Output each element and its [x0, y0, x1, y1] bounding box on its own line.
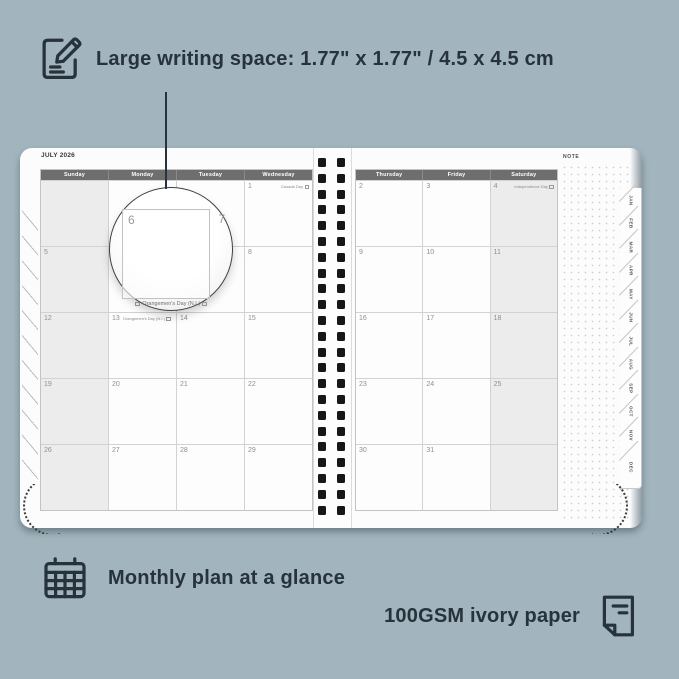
- spiral-hole: [337, 395, 345, 404]
- calendar-cell: 29: [245, 445, 312, 510]
- calendar-cell: 27: [109, 445, 177, 510]
- top-annotation: Large writing space: 1.77" x 1.77" / 4.5…: [38, 34, 554, 84]
- calendar-cell: 20: [109, 379, 177, 444]
- calendar-cell: 3: [423, 181, 490, 246]
- spiral-hole: [318, 174, 326, 183]
- calendar-cell: 10: [423, 247, 490, 312]
- date-number: 19: [44, 381, 52, 389]
- calendar-mini-icon: [135, 302, 140, 307]
- spiral-hole: [318, 379, 326, 388]
- date-number: 30: [359, 447, 367, 455]
- month-tab-sep: SEP: [620, 376, 642, 400]
- spiral-hole: [337, 269, 345, 278]
- spiral-hole: [318, 237, 326, 246]
- date-number: 12: [44, 315, 52, 323]
- date-number: 9: [359, 249, 363, 257]
- spiral-hole: [337, 427, 345, 436]
- planner-right-page: ThursdayFridaySaturday234Independence Da…: [352, 148, 642, 528]
- date-number: 2: [359, 183, 363, 191]
- date-number: 15: [248, 315, 256, 323]
- spiral-hole: [337, 237, 345, 246]
- spiral-hole: [337, 300, 345, 309]
- month-title: JULY 2026: [41, 152, 75, 159]
- calendar-grid-right: ThursdayFridaySaturday234Independence Da…: [355, 169, 558, 511]
- magnifier-circle: 6 7 Orangemen's Day (N.I.): [109, 187, 233, 311]
- spiral-hole: [318, 253, 326, 262]
- calendar-cell: 18: [491, 313, 557, 378]
- calendar-cell: 1Canada Day: [245, 181, 312, 246]
- date-number: 27: [112, 447, 120, 455]
- spiral-hole: [318, 427, 326, 436]
- magnified-date-number: 6: [128, 213, 135, 227]
- date-number: 3: [426, 183, 430, 191]
- calendar-cell: 21: [177, 379, 245, 444]
- date-number: 10: [426, 249, 434, 257]
- month-tab-jul: JUL: [620, 329, 642, 353]
- date-number: 5: [44, 249, 48, 257]
- date-number: 1: [248, 183, 252, 191]
- calendar-cell: 24: [423, 379, 490, 444]
- spiral-hole: [337, 379, 345, 388]
- spiral-hole: [337, 411, 345, 420]
- spiral-hole: [318, 284, 326, 293]
- calendar-cell: 8: [245, 247, 312, 312]
- spiral-hole: [318, 158, 326, 167]
- bottom-right-annotation-text: 100GSM ivory paper: [384, 605, 580, 628]
- flag-icon: [166, 317, 171, 321]
- date-number: 24: [426, 381, 434, 389]
- spiral-hole: [337, 205, 345, 214]
- calendar-cell: 14: [177, 313, 245, 378]
- calendar-cell: 30: [356, 445, 423, 510]
- calendar-cell: [491, 445, 557, 510]
- flag-icon: [202, 302, 207, 306]
- calendar-cell: 15: [245, 313, 312, 378]
- spiral-hole: [337, 221, 345, 230]
- spiral-hole: [337, 442, 345, 451]
- note-label: NOTE: [563, 154, 579, 160]
- spiral-hole: [337, 158, 345, 167]
- calendar-cell: 12: [41, 313, 109, 378]
- edit-note-icon: [38, 34, 84, 84]
- margin-hatch-decoration: [22, 206, 38, 484]
- holiday-label: Independence Day: [514, 183, 555, 191]
- calendar-cell: 17: [423, 313, 490, 378]
- date-number: 4: [494, 183, 498, 191]
- magnified-holiday-label: Orangemen's Day (N.I.): [110, 301, 232, 307]
- spiral-hole: [337, 348, 345, 357]
- spiral-hole: [318, 363, 326, 372]
- spiral-hole: [318, 190, 326, 199]
- calendar-cell: 22: [245, 379, 312, 444]
- month-tab-feb: FEB: [620, 212, 642, 236]
- spiral-hole: [318, 474, 326, 483]
- spiral-hole: [337, 490, 345, 499]
- magnified-adjacent-date: 7: [218, 212, 225, 226]
- spiral-hole: [318, 348, 326, 357]
- date-number: 16: [359, 315, 367, 323]
- calendar-cell: 11: [491, 247, 557, 312]
- spiral-hole-column: [318, 158, 326, 515]
- paper-sheet-icon: [596, 592, 640, 640]
- spiral-hole: [318, 458, 326, 467]
- callout-line: [165, 92, 167, 189]
- spiral-hole: [337, 474, 345, 483]
- spiral-hole-column: [337, 158, 345, 515]
- spiral-hole: [318, 269, 326, 278]
- spiral-hole: [318, 205, 326, 214]
- month-tab-nov: NOV: [620, 423, 642, 447]
- month-tab-aug: AUG: [620, 353, 642, 377]
- date-number: 21: [180, 381, 188, 389]
- spiral-hole: [337, 174, 345, 183]
- month-tab-jan: JAN: [620, 188, 642, 212]
- product-image: Large writing space: 1.77" x 1.77" / 4.5…: [0, 0, 679, 679]
- date-number: 18: [494, 315, 502, 323]
- calendar-cell: 9: [356, 247, 423, 312]
- spiral-hole: [318, 395, 326, 404]
- month-tab-jun: JUN: [620, 306, 642, 330]
- holiday-label: Orangemen's Day (N.I.): [123, 315, 172, 323]
- spiral-hole: [337, 332, 345, 341]
- spiral-hole: [318, 300, 326, 309]
- date-number: 25: [494, 381, 502, 389]
- day-header: Friday: [423, 170, 490, 180]
- date-number: 26: [44, 447, 52, 455]
- spiral-hole: [318, 411, 326, 420]
- date-number: 31: [426, 447, 434, 455]
- corner-stitch-bottom-right: [592, 484, 636, 534]
- magnified-cell: 6: [122, 209, 210, 299]
- day-header: Saturday: [491, 170, 557, 180]
- spiral-hole: [318, 490, 326, 499]
- calendar-grid-icon: [40, 554, 90, 602]
- date-number: 29: [248, 447, 256, 455]
- day-header: Sunday: [41, 170, 109, 180]
- month-tab-may: MAY: [620, 282, 642, 306]
- bottom-left-annotation-text: Monthly plan at a glance: [108, 567, 345, 590]
- calendar-cell: 28: [177, 445, 245, 510]
- date-number: 17: [426, 315, 434, 323]
- spiral-hole: [337, 190, 345, 199]
- holiday-label: Canada Day: [281, 183, 310, 191]
- date-number: 11: [494, 249, 501, 257]
- bottom-left-annotation: Monthly plan at a glance: [40, 554, 345, 602]
- calendar-cell: 2: [356, 181, 423, 246]
- date-number: 13: [112, 315, 120, 323]
- top-annotation-text: Large writing space: 1.77" x 1.77" / 4.5…: [96, 48, 554, 71]
- day-header: Tuesday: [177, 170, 245, 180]
- flag-icon: [549, 185, 554, 189]
- month-tab-apr: APR: [620, 259, 642, 283]
- calendar-cell: 4Independence Day: [491, 181, 557, 246]
- corner-stitch-bottom-left: [17, 484, 61, 534]
- spiral-hole: [337, 458, 345, 467]
- calendar-cell: 16: [356, 313, 423, 378]
- spiral-hole: [337, 316, 345, 325]
- bottom-right-annotation: 100GSM ivory paper: [384, 592, 640, 640]
- calendar-cell: [41, 181, 109, 246]
- calendar-cell: 19: [41, 379, 109, 444]
- date-number: 23: [359, 381, 367, 389]
- spiral-hole: [318, 506, 326, 515]
- spiral-hole: [337, 284, 345, 293]
- planner-spread: JULY 2026 SundayMondayTuesdayWednesday1C…: [20, 148, 642, 528]
- day-header: Thursday: [356, 170, 423, 180]
- spiral-hole: [337, 506, 345, 515]
- spiral-hole: [318, 332, 326, 341]
- calendar-cell: 23: [356, 379, 423, 444]
- date-number: 28: [180, 447, 188, 455]
- calendar-cell: 5: [41, 247, 109, 312]
- calendar-cell: 25: [491, 379, 557, 444]
- date-number: 22: [248, 381, 256, 389]
- month-tab-strip: JANFEBMARAPRMAYJUNJULAUGSEPOCTNOVDEC: [620, 188, 642, 489]
- calendar-cell: 31: [423, 445, 490, 510]
- spiral-hole: [318, 442, 326, 451]
- calendar-cell: 13Orangemen's Day (N.I.): [109, 313, 177, 378]
- month-tab-mar: MAR: [620, 235, 642, 259]
- day-header: Wednesday: [245, 170, 312, 180]
- spiral-binding: [313, 148, 352, 528]
- date-number: 14: [180, 315, 188, 323]
- date-number: 20: [112, 381, 120, 389]
- spiral-hole: [337, 363, 345, 372]
- month-tab-dec: DEC: [620, 447, 642, 489]
- spiral-hole: [318, 221, 326, 230]
- spiral-hole: [337, 253, 345, 262]
- spiral-hole: [318, 316, 326, 325]
- month-tab-oct: OCT: [620, 400, 642, 424]
- flag-icon: [305, 185, 310, 189]
- date-number: 8: [248, 249, 252, 257]
